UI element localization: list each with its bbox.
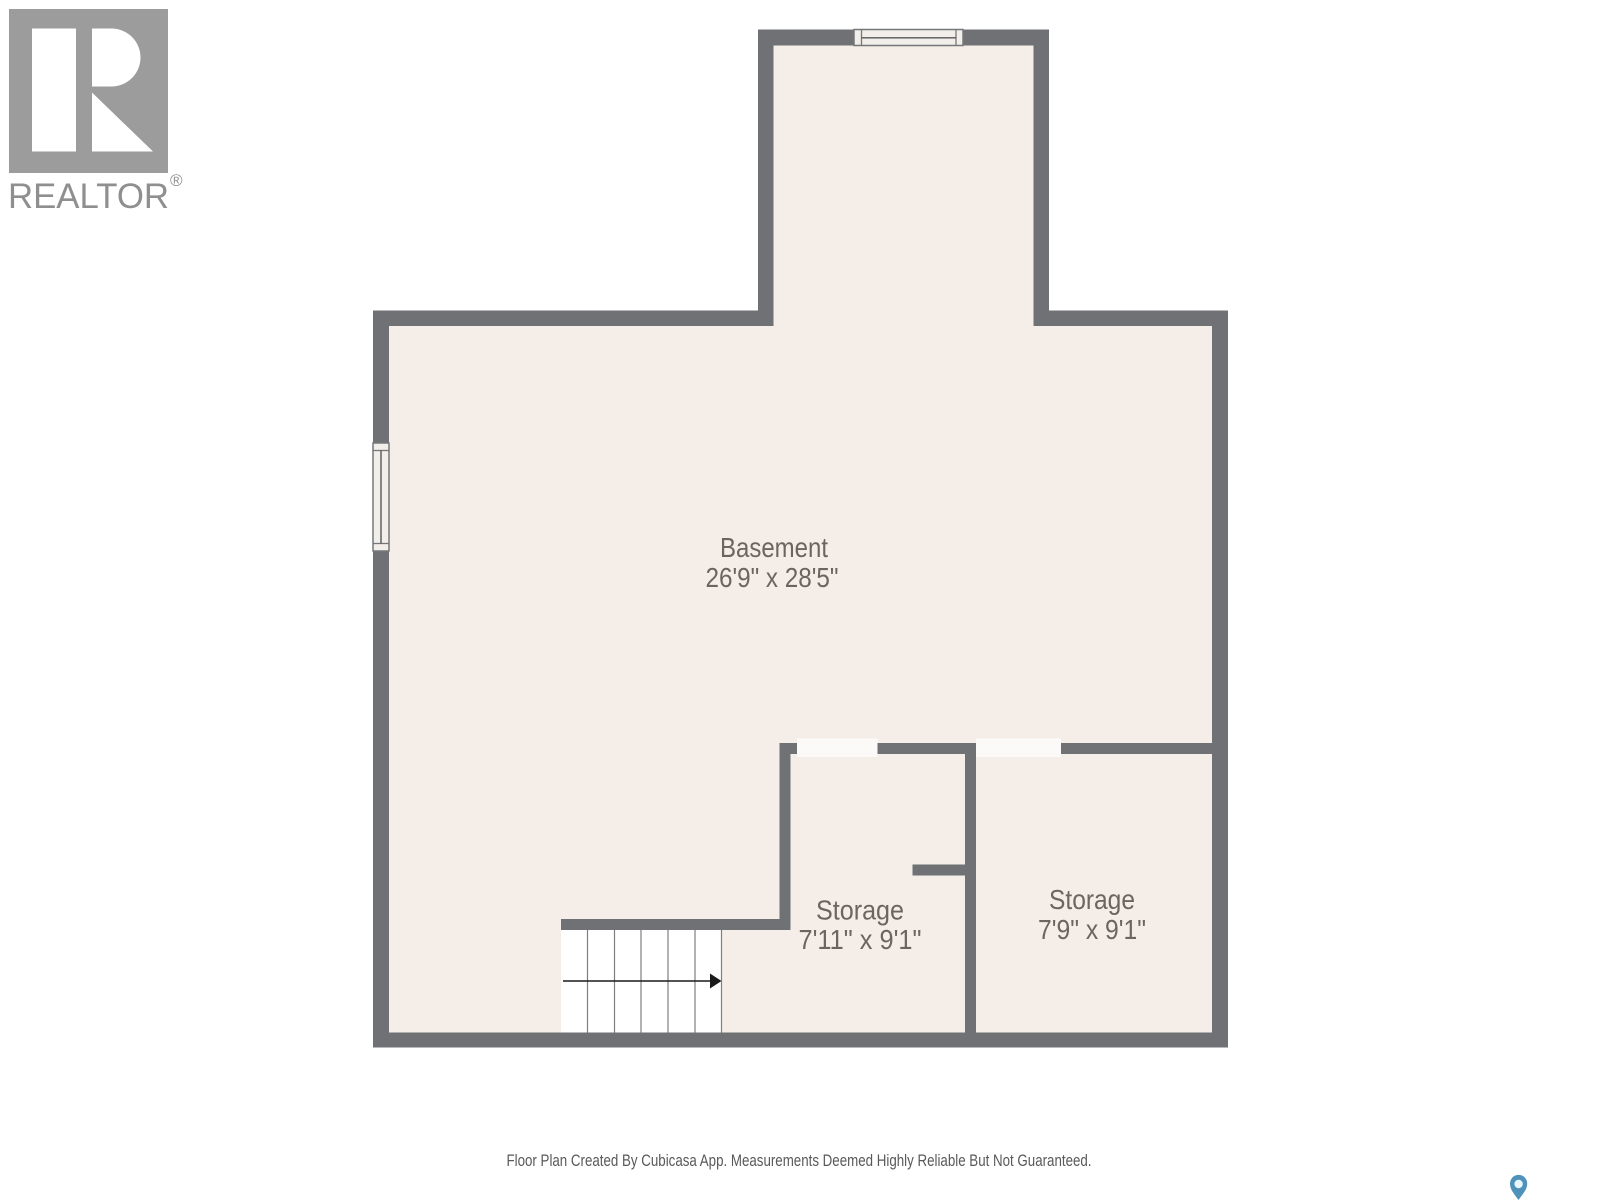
svg-text:26'9" x 28'5": 26'9" x 28'5"	[706, 562, 839, 593]
svg-text:Basement: Basement	[720, 532, 828, 563]
svg-text:Storage: Storage	[816, 895, 904, 926]
svg-text:®: ®	[170, 171, 183, 190]
svg-text:7'9" x 9'1": 7'9" x 9'1"	[1038, 914, 1146, 945]
svg-text:REALTOR: REALTOR	[8, 176, 169, 216]
svg-text:Storage: Storage	[1049, 884, 1135, 915]
svg-text:7'11" x 9'1": 7'11" x 9'1"	[799, 924, 922, 955]
svg-text:Floor Plan Created By Cubicasa: Floor Plan Created By Cubicasa App. Meas…	[507, 1151, 1092, 1170]
